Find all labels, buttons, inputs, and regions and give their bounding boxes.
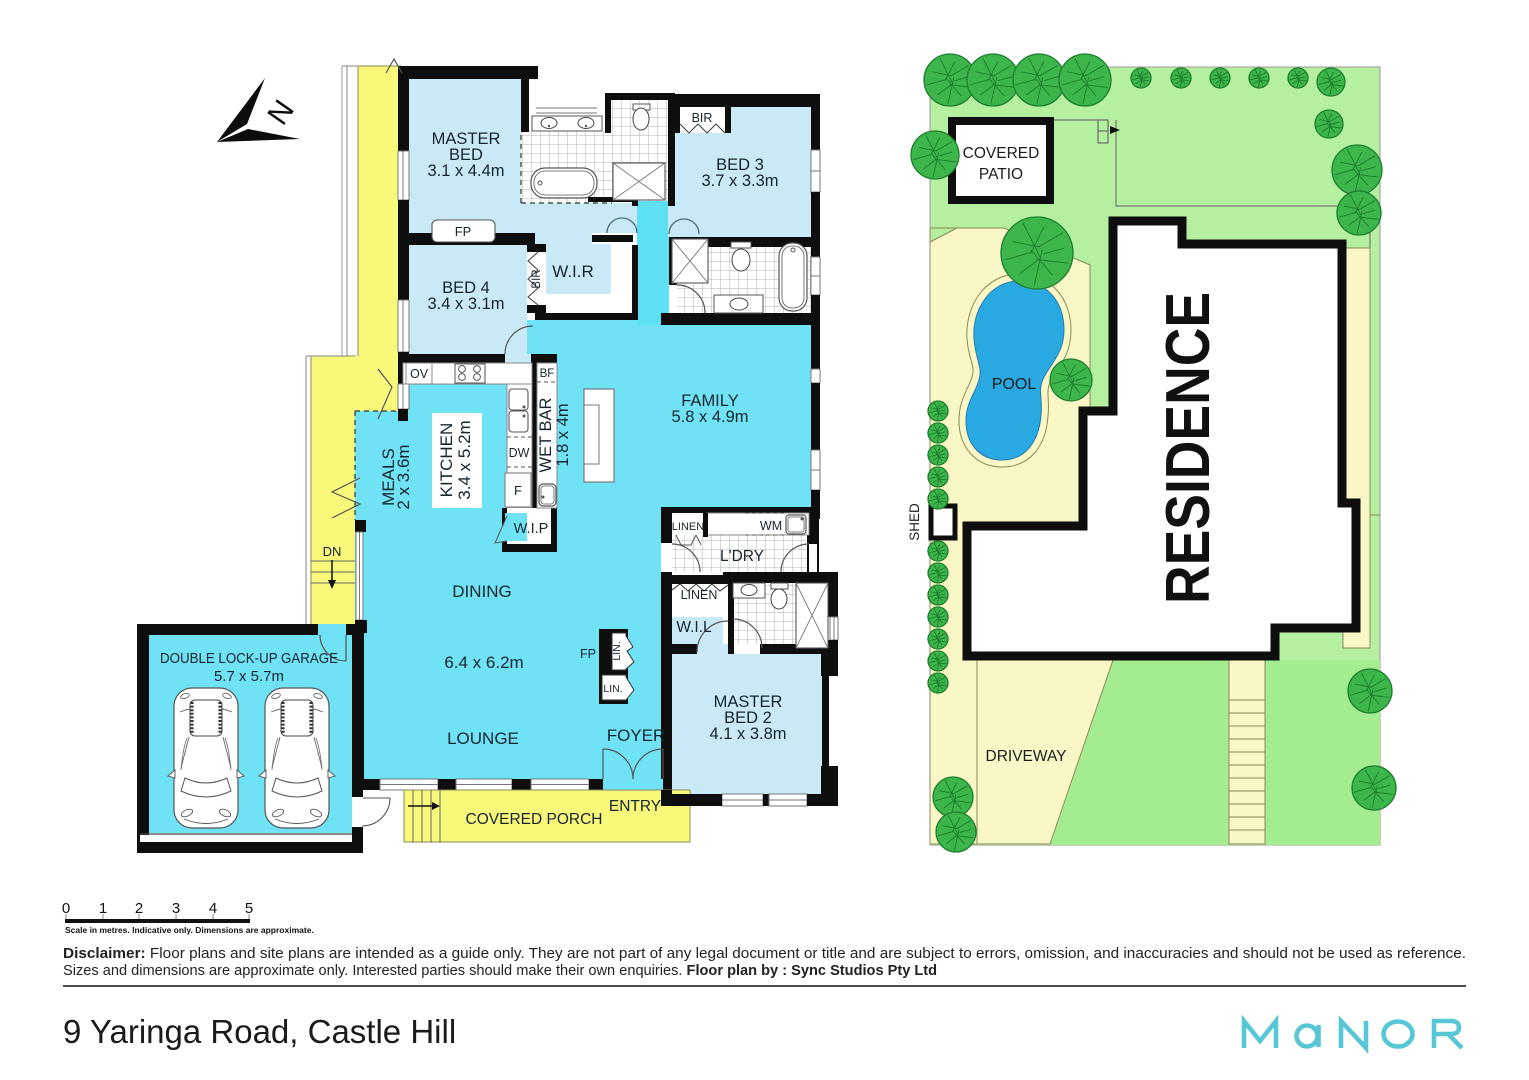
svg-text:WM: WM	[760, 519, 782, 533]
svg-text:LOUNGE: LOUNGE	[447, 729, 519, 748]
svg-text:SHED: SHED	[907, 503, 922, 541]
svg-text:POOL: POOL	[992, 376, 1037, 393]
svg-text:DN: DN	[323, 544, 342, 559]
svg-text:9 Yaringa Road, Castle Hill: 9 Yaringa Road, Castle Hill	[63, 1013, 456, 1050]
svg-text:BIR: BIR	[531, 269, 543, 288]
svg-text:PATIO: PATIO	[979, 166, 1023, 183]
svg-text:6.4 x 6.2m: 6.4 x 6.2m	[444, 653, 523, 672]
svg-text:WET BAR: WET BAR	[537, 397, 555, 472]
svg-text:F: F	[514, 483, 522, 498]
svg-text:Disclaimer: Floor plans and si: Disclaimer: Floor plans and site plans a…	[63, 946, 1466, 962]
svg-text:LINEN: LINEN	[672, 521, 704, 533]
svg-text:LIN.: LIN.	[611, 641, 623, 660]
svg-text:DOUBLE LOCK-UP GARAGE: DOUBLE LOCK-UP GARAGE	[160, 650, 338, 667]
svg-text:W.I.R: W.I.R	[552, 262, 594, 281]
svg-text:2 x 3.6m: 2 x 3.6m	[394, 444, 413, 509]
svg-text:Sizes and dimensions are appro: Sizes and dimensions are approximate onl…	[63, 963, 937, 979]
svg-text:LINEN: LINEN	[681, 588, 718, 602]
svg-text:W.I.L: W.I.L	[676, 619, 712, 636]
svg-text:3.4 x 5.2m: 3.4 x 5.2m	[455, 420, 474, 499]
svg-text:BF: BF	[540, 368, 555, 380]
svg-text:KITCHEN: KITCHEN	[437, 423, 456, 498]
svg-text:OV: OV	[410, 367, 429, 381]
svg-text:Scale in metres. Indicative on: Scale in metres. Indicative only. Dimens…	[65, 925, 314, 935]
svg-text:FOYER: FOYER	[607, 726, 666, 745]
svg-text:W.I.P: W.I.P	[514, 521, 549, 537]
svg-text:COVERED: COVERED	[963, 145, 1040, 162]
svg-text:4.1 x 3.8m: 4.1 x 3.8m	[709, 725, 786, 743]
svg-text:RESIDENCE: RESIDENCE	[1154, 292, 1223, 604]
svg-text:5.8 x 4.9m: 5.8 x 4.9m	[671, 408, 748, 426]
svg-text:3.1 x 4.4m: 3.1 x 4.4m	[427, 162, 504, 180]
svg-text:COVERED PORCH: COVERED PORCH	[466, 811, 603, 828]
svg-text:5.7 x 5.7m: 5.7 x 5.7m	[214, 668, 284, 685]
svg-text:3.7 x 3.3m: 3.7 x 3.3m	[701, 172, 778, 190]
svg-text:BIR: BIR	[692, 111, 713, 125]
svg-text:ENTRY: ENTRY	[609, 798, 661, 815]
svg-text:L'DRY: L'DRY	[720, 548, 764, 565]
svg-text:DINING: DINING	[452, 582, 512, 601]
svg-text:DRIVEWAY: DRIVEWAY	[986, 748, 1067, 765]
svg-text:1.8 x 4m: 1.8 x 4m	[554, 403, 572, 466]
svg-text:LIN.: LIN.	[603, 683, 622, 695]
svg-text:DW: DW	[509, 446, 530, 460]
svg-text:FP: FP	[580, 647, 596, 661]
svg-text:FP: FP	[455, 224, 472, 239]
svg-text:3.4 x 3.1m: 3.4 x 3.1m	[427, 295, 504, 313]
